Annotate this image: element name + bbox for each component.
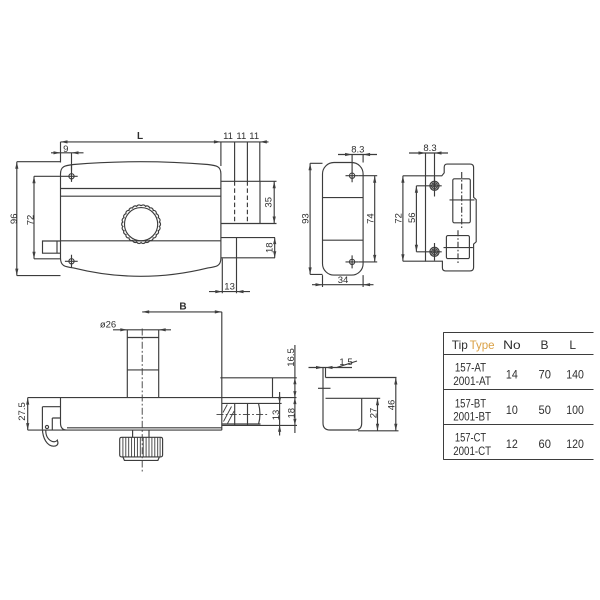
svg-text:157-AT: 157-AT: [455, 362, 486, 375]
svg-text:1.5: 1.5: [339, 357, 352, 368]
svg-text:11: 11: [223, 131, 233, 142]
svg-text:L: L: [137, 131, 143, 142]
svg-text:27.5: 27.5: [17, 402, 28, 421]
svg-text:No: No: [503, 338, 521, 352]
svg-text:10: 10: [506, 404, 518, 417]
svg-text:72: 72: [25, 215, 36, 226]
svg-text:93: 93: [301, 213, 312, 224]
svg-text:9: 9: [63, 144, 68, 155]
svg-text:35: 35: [264, 197, 275, 208]
svg-text:Tip: Tip: [452, 338, 468, 352]
svg-text:100: 100: [566, 404, 584, 417]
svg-text:2001-AT: 2001-AT: [453, 375, 491, 388]
svg-text:11: 11: [249, 131, 259, 142]
svg-text:8.3: 8.3: [423, 143, 436, 154]
svg-text:60: 60: [539, 438, 551, 451]
svg-text:157-CT: 157-CT: [455, 432, 486, 445]
svg-text:27: 27: [368, 408, 379, 419]
svg-text:13: 13: [271, 410, 282, 421]
svg-text:72: 72: [394, 213, 405, 224]
svg-text:Type: Type: [470, 338, 495, 352]
svg-text:56: 56: [407, 212, 418, 223]
svg-text:120: 120: [566, 438, 584, 451]
svg-text:B: B: [541, 338, 549, 352]
svg-text:2001-CT: 2001-CT: [453, 445, 491, 458]
svg-text:ø26: ø26: [100, 319, 116, 330]
svg-text:74: 74: [365, 213, 376, 224]
svg-text:46: 46: [387, 400, 398, 411]
svg-text:157-BT: 157-BT: [455, 397, 486, 410]
svg-text:L: L: [569, 338, 576, 352]
svg-text:12: 12: [506, 438, 518, 451]
svg-text:8.3: 8.3: [351, 144, 364, 155]
svg-text:18: 18: [264, 242, 275, 253]
svg-text:B: B: [179, 302, 186, 313]
svg-text:11: 11: [236, 131, 246, 142]
svg-text:16.5: 16.5: [286, 348, 297, 367]
svg-text:96: 96: [9, 214, 20, 225]
svg-text:13: 13: [224, 281, 235, 292]
svg-text:34: 34: [338, 275, 349, 286]
svg-text:2001-BT: 2001-BT: [453, 411, 491, 424]
svg-text:50: 50: [539, 404, 551, 417]
svg-text:140: 140: [566, 369, 584, 382]
svg-text:70: 70: [539, 369, 551, 382]
svg-text:18: 18: [286, 408, 297, 419]
svg-text:14: 14: [506, 369, 518, 382]
